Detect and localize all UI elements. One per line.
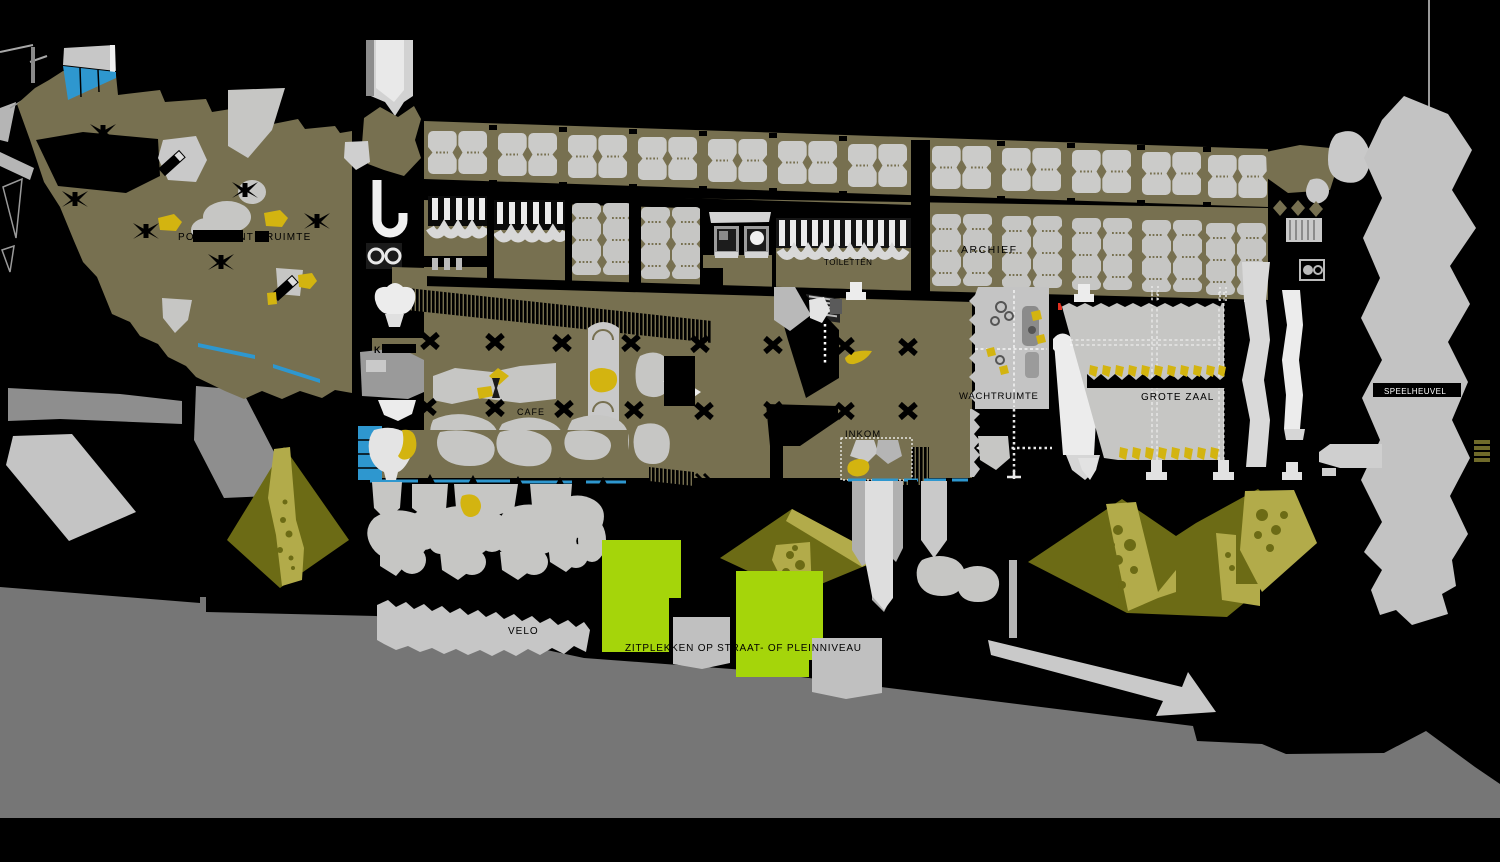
svg-text:ZITPLEKKEN OP STRAAT- OF PLEIN: ZITPLEKKEN OP STRAAT- OF PLEINNIVEAU <box>625 643 862 654</box>
svg-text:GROTE ZAAL: GROTE ZAAL <box>1141 392 1214 403</box>
svg-text:INKOM: INKOM <box>845 429 881 440</box>
svg-text:K: K <box>374 345 381 355</box>
svg-text:ARCHIEF: ARCHIEF <box>961 244 1018 256</box>
svg-text:VELO: VELO <box>508 626 539 637</box>
svg-text:SPEELHEUVEL: SPEELHEUVEL <box>1384 387 1446 396</box>
svg-text:TOILETTEN: TOILETTEN <box>824 258 872 267</box>
svg-text:CAFE: CAFE <box>517 407 545 417</box>
svg-text:WACHTRUIMTE: WACHTRUIMTE <box>959 391 1039 402</box>
